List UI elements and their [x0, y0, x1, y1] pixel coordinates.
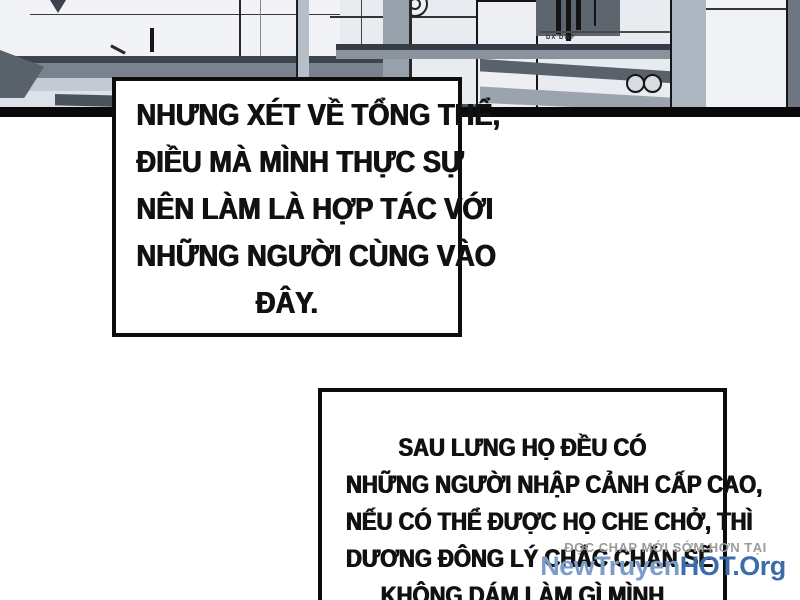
- wall-panel: [706, 0, 788, 117]
- wall-seam-line: [706, 8, 788, 10]
- rail-body: [336, 50, 720, 59]
- hanging-pipe: [556, 0, 561, 34]
- speech-line: ĐÂY.: [137, 279, 438, 326]
- speech-bubble-1: NHƯNG XÉT VỀ TỔNG THỂ, ĐIỀU MÀ MÌNH THỰC…: [112, 77, 462, 337]
- watermark-site-name: NewTruyenHOT.Org: [538, 551, 788, 582]
- watermark-site-tld: .Org: [732, 551, 786, 581]
- wall-seam-line: [239, 0, 241, 58]
- speech-line: NHỮNG NGƯỜI CÙNG VÀO: [137, 232, 438, 279]
- hanging-rod: [150, 28, 154, 52]
- watermark-site-hot: HOT: [680, 551, 733, 581]
- speech-line: NÊN LÀM LÀ HỢP TÁC VỚI: [137, 185, 438, 232]
- hanging-pipe: [576, 0, 581, 30]
- speech-line: NHỮNG NGƯỜI NHẬP CẢNH CẤP CAO,: [346, 467, 699, 504]
- speech-line: NHƯNG XÉT VỀ TỔNG THỂ,: [137, 91, 438, 138]
- comic-page: DX DWF NHƯNG XÉT VỀ TỔNG THỂ, ĐIỀU MÀ MÌ…: [0, 0, 800, 600]
- speech-line: ĐIỀU MÀ MÌNH THỰC SỰ: [137, 138, 438, 185]
- girder-body: [0, 63, 400, 78]
- pipe-end-circle: [643, 74, 662, 93]
- machine-stencil-label: DX DWF: [546, 35, 576, 41]
- wall-seam-line: [260, 0, 261, 58]
- speech-line: SAU LƯNG HỌ ĐỀU CÓ: [346, 430, 699, 467]
- watermark-site-prefix: NewTruyen: [540, 551, 680, 581]
- hanging-fixture: [50, 0, 66, 13]
- speech-line: NẾU CÓ THỂ ĐƯỢC HỌ CHE CHỞ, THÌ: [346, 504, 699, 541]
- wall-seam-line: [30, 14, 340, 15]
- hanging-pipe: [594, 0, 596, 26]
- pillar: [670, 0, 710, 117]
- pillar: [786, 0, 800, 117]
